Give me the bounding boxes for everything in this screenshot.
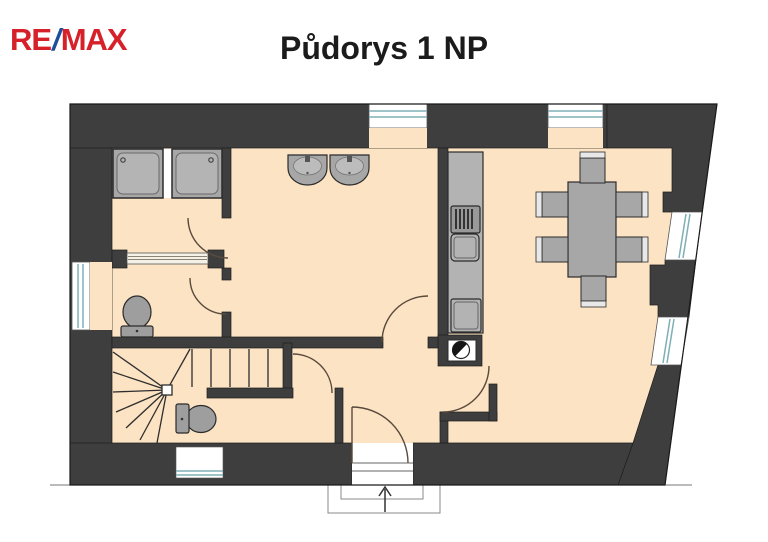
washbasin-2-tap-icon: [347, 156, 352, 162]
toilet-2-button-icon: [181, 418, 184, 421]
chair-left-1-seat: [542, 192, 568, 217]
chair-left-2-seat: [542, 237, 568, 262]
glass-partition-cap-right: [208, 250, 224, 268]
kitchen-appliance: [451, 299, 481, 332]
wall-top: [70, 104, 607, 148]
wall-wc2-east: [335, 388, 343, 443]
stair-newel: [162, 385, 172, 395]
window-top-1-sill: [369, 128, 427, 148]
chair-left-1-back: [536, 192, 542, 217]
glass-partition: [127, 253, 208, 264]
chair-left-1: [536, 192, 568, 217]
dining-table: [568, 182, 616, 277]
wall-shower-room-east: [222, 148, 231, 218]
washbasin-1-tap-icon: [305, 156, 310, 162]
glass-partition-cap-left: [112, 250, 127, 268]
toilet-1: [121, 296, 153, 337]
window-left: [72, 262, 90, 330]
chair-left-2: [536, 237, 568, 262]
wall-wc1-east-lower: [222, 312, 231, 338]
wall-bottom-right: [413, 443, 633, 485]
kitchen: [448, 152, 483, 361]
chair-top: [580, 152, 605, 183]
wall-kitchen-west: [438, 148, 448, 338]
wall-hall-north: [112, 337, 383, 348]
chair-top-seat: [580, 158, 605, 183]
window-left-sill: [90, 262, 112, 330]
floor-plan: [0, 0, 768, 542]
washbasin-1-drain-icon: [306, 172, 308, 174]
glass-partition-band: [127, 253, 208, 264]
toilet-2: [176, 404, 216, 433]
shower-1-basin: [117, 153, 159, 194]
chair-bottom: [581, 276, 606, 307]
chair-bottom-seat: [581, 276, 606, 301]
window-top-2: [548, 104, 603, 128]
chair-left-2-back: [536, 237, 542, 262]
window-top-2-sill: [548, 128, 603, 148]
chair-right-2-seat: [616, 237, 642, 262]
window-niche: [176, 447, 223, 478]
wall-wc1-east-upper: [222, 268, 231, 280]
chair-right-1-seat: [616, 192, 642, 217]
shower-1: [113, 149, 163, 198]
washbasin-1: [288, 155, 327, 185]
shower-2: [172, 149, 222, 198]
chair-bottom-back: [581, 301, 606, 307]
entrance-opening: [352, 443, 413, 485]
washbasin-2: [330, 155, 369, 185]
chair-right-1: [616, 192, 648, 217]
toilet-1-button-icon: [136, 330, 139, 333]
chair-right-2: [616, 237, 648, 262]
chair-top-back: [580, 152, 605, 158]
wall-stairwell-east: [283, 343, 292, 392]
page: RE/MAX Půdorys 1 NP: [0, 0, 768, 542]
shower-gap: [163, 149, 172, 198]
washbasin-2-drain-icon: [348, 172, 350, 174]
wall-livingroom-west-stub: [489, 384, 497, 421]
shower-2-basin: [176, 153, 218, 194]
toilet-2-bowl: [186, 406, 216, 433]
toilet-1-bowl: [123, 296, 151, 328]
wall-livingroom-south-stub: [440, 412, 497, 421]
chair-right-2-back: [642, 237, 648, 262]
window-top-1: [369, 104, 427, 128]
wall-wc2-north: [207, 388, 293, 398]
chair-right-1-back: [642, 192, 648, 217]
